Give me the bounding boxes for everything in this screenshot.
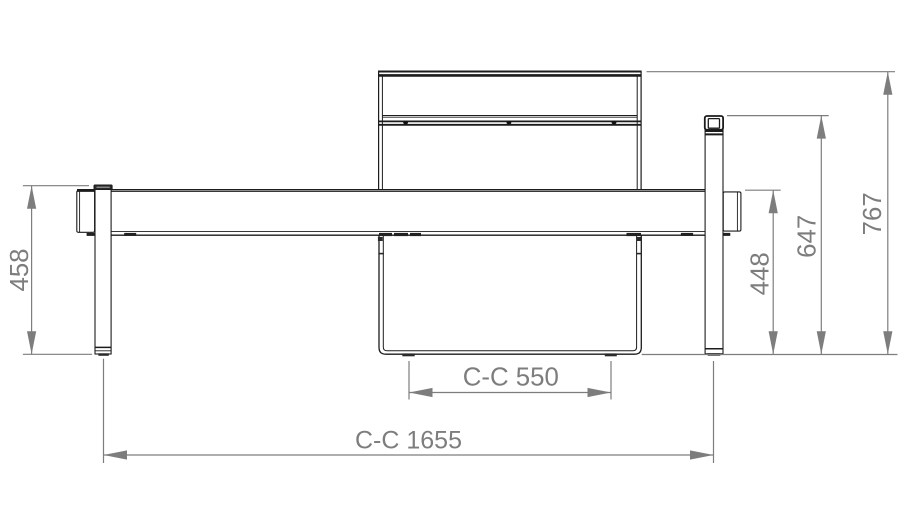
svg-text:458: 458: [6, 248, 34, 291]
svg-text:C-C 550: C-C 550: [463, 363, 559, 391]
svg-text:767: 767: [859, 192, 887, 235]
svg-text:448: 448: [747, 252, 775, 295]
svg-text:647: 647: [793, 215, 821, 258]
svg-text:C-C 1655: C-C 1655: [355, 427, 462, 455]
